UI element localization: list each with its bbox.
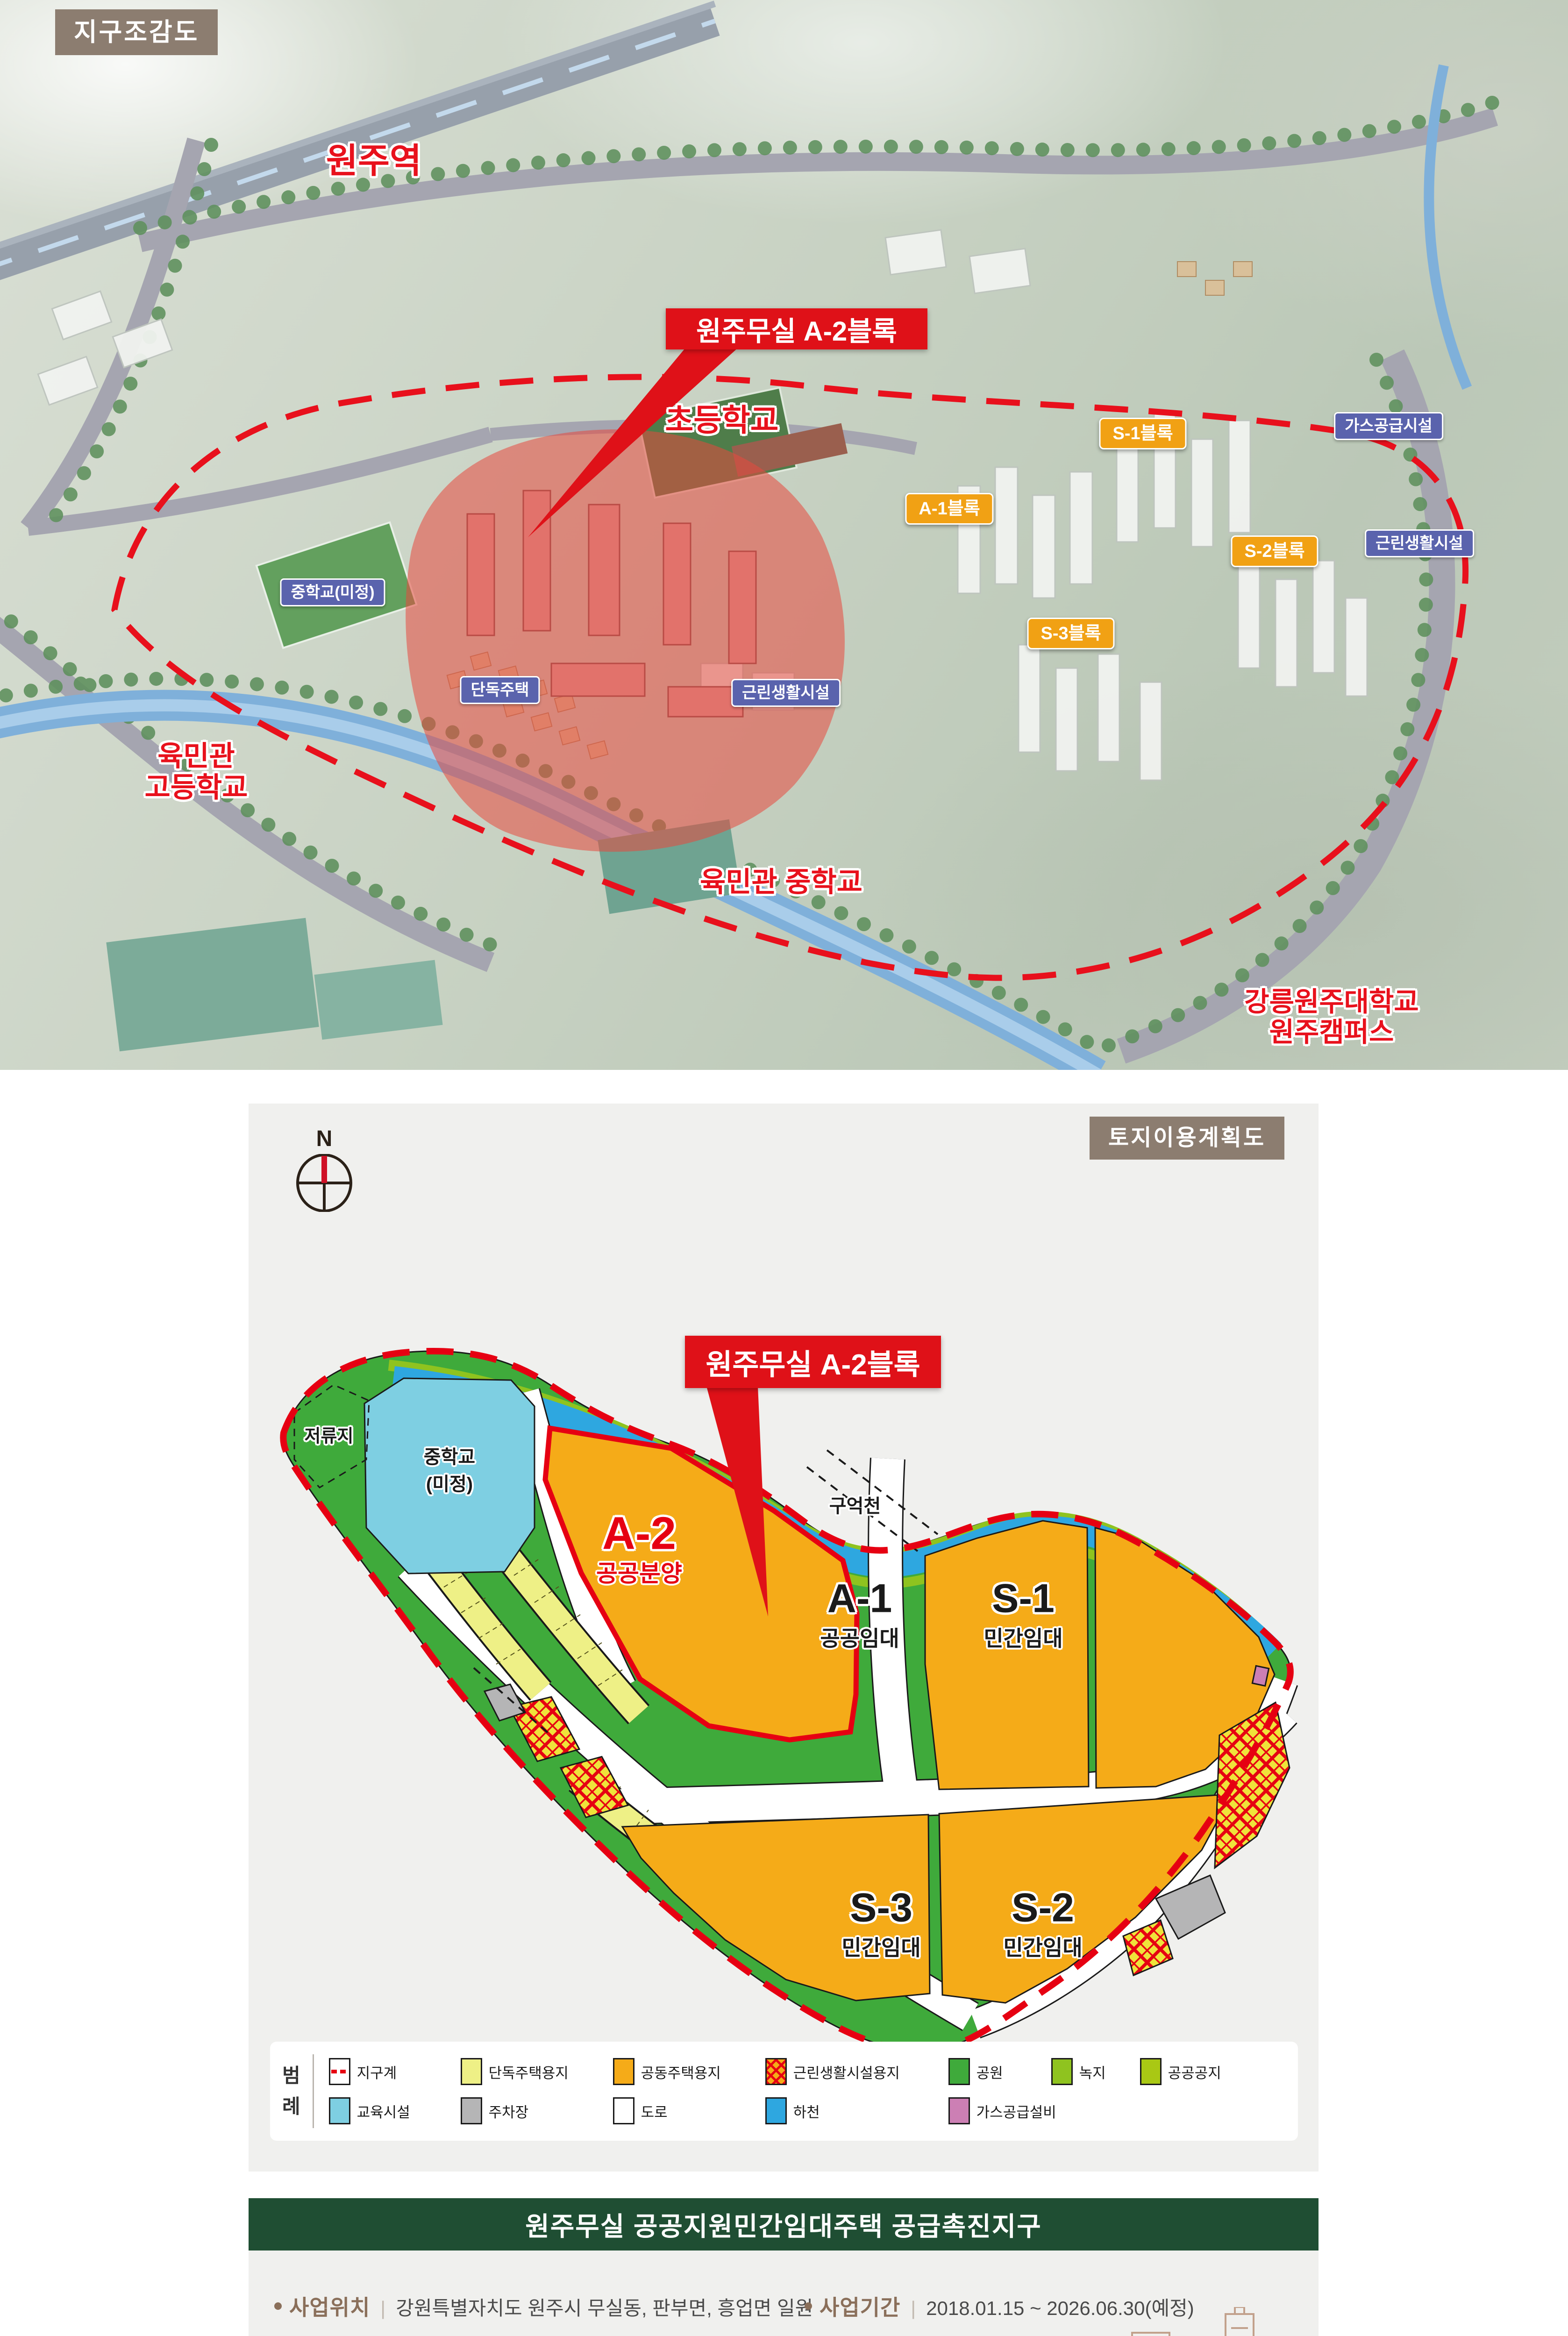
legend-label: 녹지	[1079, 2061, 1106, 2082]
chip-a1-block: A-1블록	[905, 493, 993, 525]
legend-item-education: 교육시설	[329, 2097, 461, 2124]
legend-title-char1: 범	[282, 2066, 300, 2086]
divider-bar-icon: |	[380, 2297, 385, 2320]
chip-neighborhood-mid: 근린생활시설	[731, 679, 841, 707]
land-use-map	[249, 1104, 1319, 2172]
label-wonju-station: 원주역	[326, 142, 421, 181]
info-value: 강원특별자치도 원주시 무실동, 판부면, 흥업면 일원	[396, 2293, 813, 2321]
legend-label: 공공공지	[1168, 2061, 1221, 2082]
chip-s3-block: S-3블록	[1027, 618, 1114, 649]
project-title-bar: 원주무실 공공지원민간임대주택 공급촉진지구	[249, 2198, 1319, 2251]
label-river-name: 구억천	[829, 1491, 881, 1518]
gas-swatch-icon	[948, 2097, 970, 2124]
bullet-icon	[274, 2302, 282, 2310]
legend-label: 교육시설	[357, 2101, 410, 2122]
chip-s1-block: S-1블록	[1099, 418, 1186, 449]
chip-s2-block: S-2블록	[1231, 535, 1318, 567]
legend-label: 지구계	[357, 2061, 397, 2082]
zone-sublabel-a2: 공공분양	[596, 1555, 682, 1588]
apartment-swatch-icon	[613, 2058, 634, 2085]
chip-gas-facility: 가스공급시설	[1334, 412, 1443, 440]
label-map-middle-school-line1: 중학교	[424, 1442, 475, 1469]
legend-label: 근린생활시설용지	[793, 2061, 900, 2082]
compass-n-label: N	[292, 1128, 357, 1150]
neighborhood-swatch-icon	[765, 2058, 787, 2085]
aerial-view-section: 지구조감도 원주무실 A-2블록 원주역 초등학교 육민관 고등학교 육민관 중…	[0, 0, 1568, 1070]
zone-sublabel-a1: 공공임대	[820, 1622, 899, 1652]
label-university-line1: 강릉원주대학교	[1244, 987, 1419, 1018]
info-item-location: 사업위치 | 강원특별자치도 원주시 무실동, 판부면, 흥업면 일원	[274, 2291, 813, 2322]
legend-title-char2: 례	[282, 2097, 300, 2116]
legend-item-gas: 가스공급설비	[948, 2097, 1051, 2124]
education-swatch-icon	[329, 2097, 350, 2124]
park-swatch-icon	[948, 2058, 970, 2085]
aerial-callout-a2-block: 원주무실 A-2블록	[666, 308, 927, 349]
project-info-body: 사업위치 | 강원특별자치도 원주시 무실동, 판부면, 흥업면 일원 사업면적…	[249, 2251, 1319, 2336]
info-label: 사업기간	[820, 2291, 900, 2322]
district-boundary-swatch-icon	[329, 2058, 350, 2085]
legend-item-parking: 주차장	[461, 2097, 613, 2124]
legend-label: 공원	[976, 2061, 1003, 2082]
legend-item-open-space: 공공공지	[1140, 2058, 1251, 2085]
greenery-swatch-icon	[1051, 2058, 1073, 2085]
single-house-swatch-icon	[461, 2058, 482, 2085]
compass-icon	[295, 1154, 353, 1212]
label-retention-pond: 저류지	[305, 1422, 354, 1447]
info-column-left: 사업위치 | 강원특별자치도 원주시 무실동, 판부면, 흥업면 일원 사업면적…	[274, 2291, 813, 2336]
compass: N	[292, 1128, 357, 1214]
land-use-plan-section: 토지이용계획도 N 원주무실 A-2블록 A-2 공공분양 A-1 공공임대 S…	[249, 1104, 1319, 2172]
info-label: 사업위치	[289, 2291, 370, 2322]
chip-middle-school-tbd: 중학교(미정)	[280, 578, 385, 606]
label-high-school-line1: 육민관	[145, 741, 248, 772]
label-elementary-school: 초등학교	[665, 403, 779, 438]
zone-label-a1: A-1	[827, 1576, 892, 1622]
zone-label-s3: S-3	[850, 1885, 912, 1931]
label-university-line2: 원주캠퍼스	[1244, 1018, 1419, 1048]
legend-item-apartment: 공동주택용지	[613, 2058, 765, 2085]
zone-sublabel-s2: 민간임대	[1003, 1931, 1082, 1962]
chip-neighborhood-right: 근린생활시설	[1365, 529, 1474, 557]
legend-title: 범 례	[282, 2066, 300, 2116]
project-info-section: 원주무실 공공지원민간임대주택 공급촉진지구 사업위치 | 강원특별자치도 원주…	[249, 2198, 1319, 2336]
legend-divider	[313, 2054, 314, 2128]
river-swatch-icon	[765, 2097, 787, 2124]
legend-label: 주차장	[489, 2101, 529, 2122]
legend-label: 공동주택용지	[641, 2061, 721, 2082]
gas-facility-zone	[1252, 1666, 1269, 1686]
legend-label: 가스공급설비	[976, 2101, 1056, 2122]
legend-item-greenery: 녹지	[1051, 2058, 1140, 2085]
bullet-icon	[805, 2302, 812, 2310]
map-callout-a2-block: 원주무실 A-2블록	[685, 1336, 941, 1388]
page: 지구조감도 원주무실 A-2블록 원주역 초등학교 육민관 고등학교 육민관 중…	[0, 0, 1568, 2336]
zone-sublabel-s1: 민간임대	[984, 1622, 1062, 1652]
divider-bar-icon: |	[911, 2297, 916, 2320]
zone-label-s2: S-2	[1012, 1885, 1074, 1931]
zone-a1	[925, 1521, 1089, 1789]
legend-item-park: 공원	[948, 2058, 1051, 2085]
label-middle-school: 육민관 중학교	[700, 866, 862, 897]
label-map-middle-school-line2: (미정)	[424, 1469, 475, 1496]
buildings-illustration-icon	[999, 2307, 1307, 2336]
legend-item-district-boundary: 지구계	[329, 2058, 461, 2085]
open-space-swatch-icon	[1140, 2058, 1162, 2085]
label-map-middle-school: 중학교 (미정)	[424, 1442, 475, 1496]
legend-item-river: 하천	[765, 2097, 948, 2124]
legend-grid: 지구계 단독주택용지 공동주택용지 근린생활시설용지 공원	[329, 2058, 1251, 2124]
label-high-school: 육민관 고등학교	[145, 741, 248, 803]
legend-item-road: 도로	[613, 2097, 765, 2124]
legend-label: 하천	[793, 2101, 820, 2122]
chip-single-house: 단독주택	[460, 676, 540, 704]
legend-card: 범 례 지구계 단독주택용지 공동주택용지 근린	[270, 2042, 1298, 2141]
zone-label-a2: A-2	[602, 1507, 676, 1560]
legend-item-single-house: 단독주택용지	[461, 2058, 613, 2085]
label-university: 강릉원주대학교 원주캠퍼스	[1244, 987, 1419, 1048]
aerial-illustration	[0, 0, 1568, 1070]
a2-highlight-zone	[406, 429, 845, 852]
zone-sublabel-s3: 민간임대	[841, 1931, 920, 1962]
parking-swatch-icon	[461, 2097, 482, 2124]
legend-label: 도로	[641, 2101, 668, 2122]
road-swatch-icon	[613, 2097, 634, 2124]
zone-label-s1: S-1	[992, 1576, 1055, 1622]
land-use-tag: 토지이용계획도	[1090, 1117, 1284, 1160]
aerial-tag: 지구조감도	[55, 9, 218, 55]
legend-label: 단독주택용지	[489, 2061, 569, 2082]
legend-item-neighborhood: 근린생활시설용지	[765, 2058, 948, 2085]
label-high-school-line2: 고등학교	[145, 772, 248, 803]
